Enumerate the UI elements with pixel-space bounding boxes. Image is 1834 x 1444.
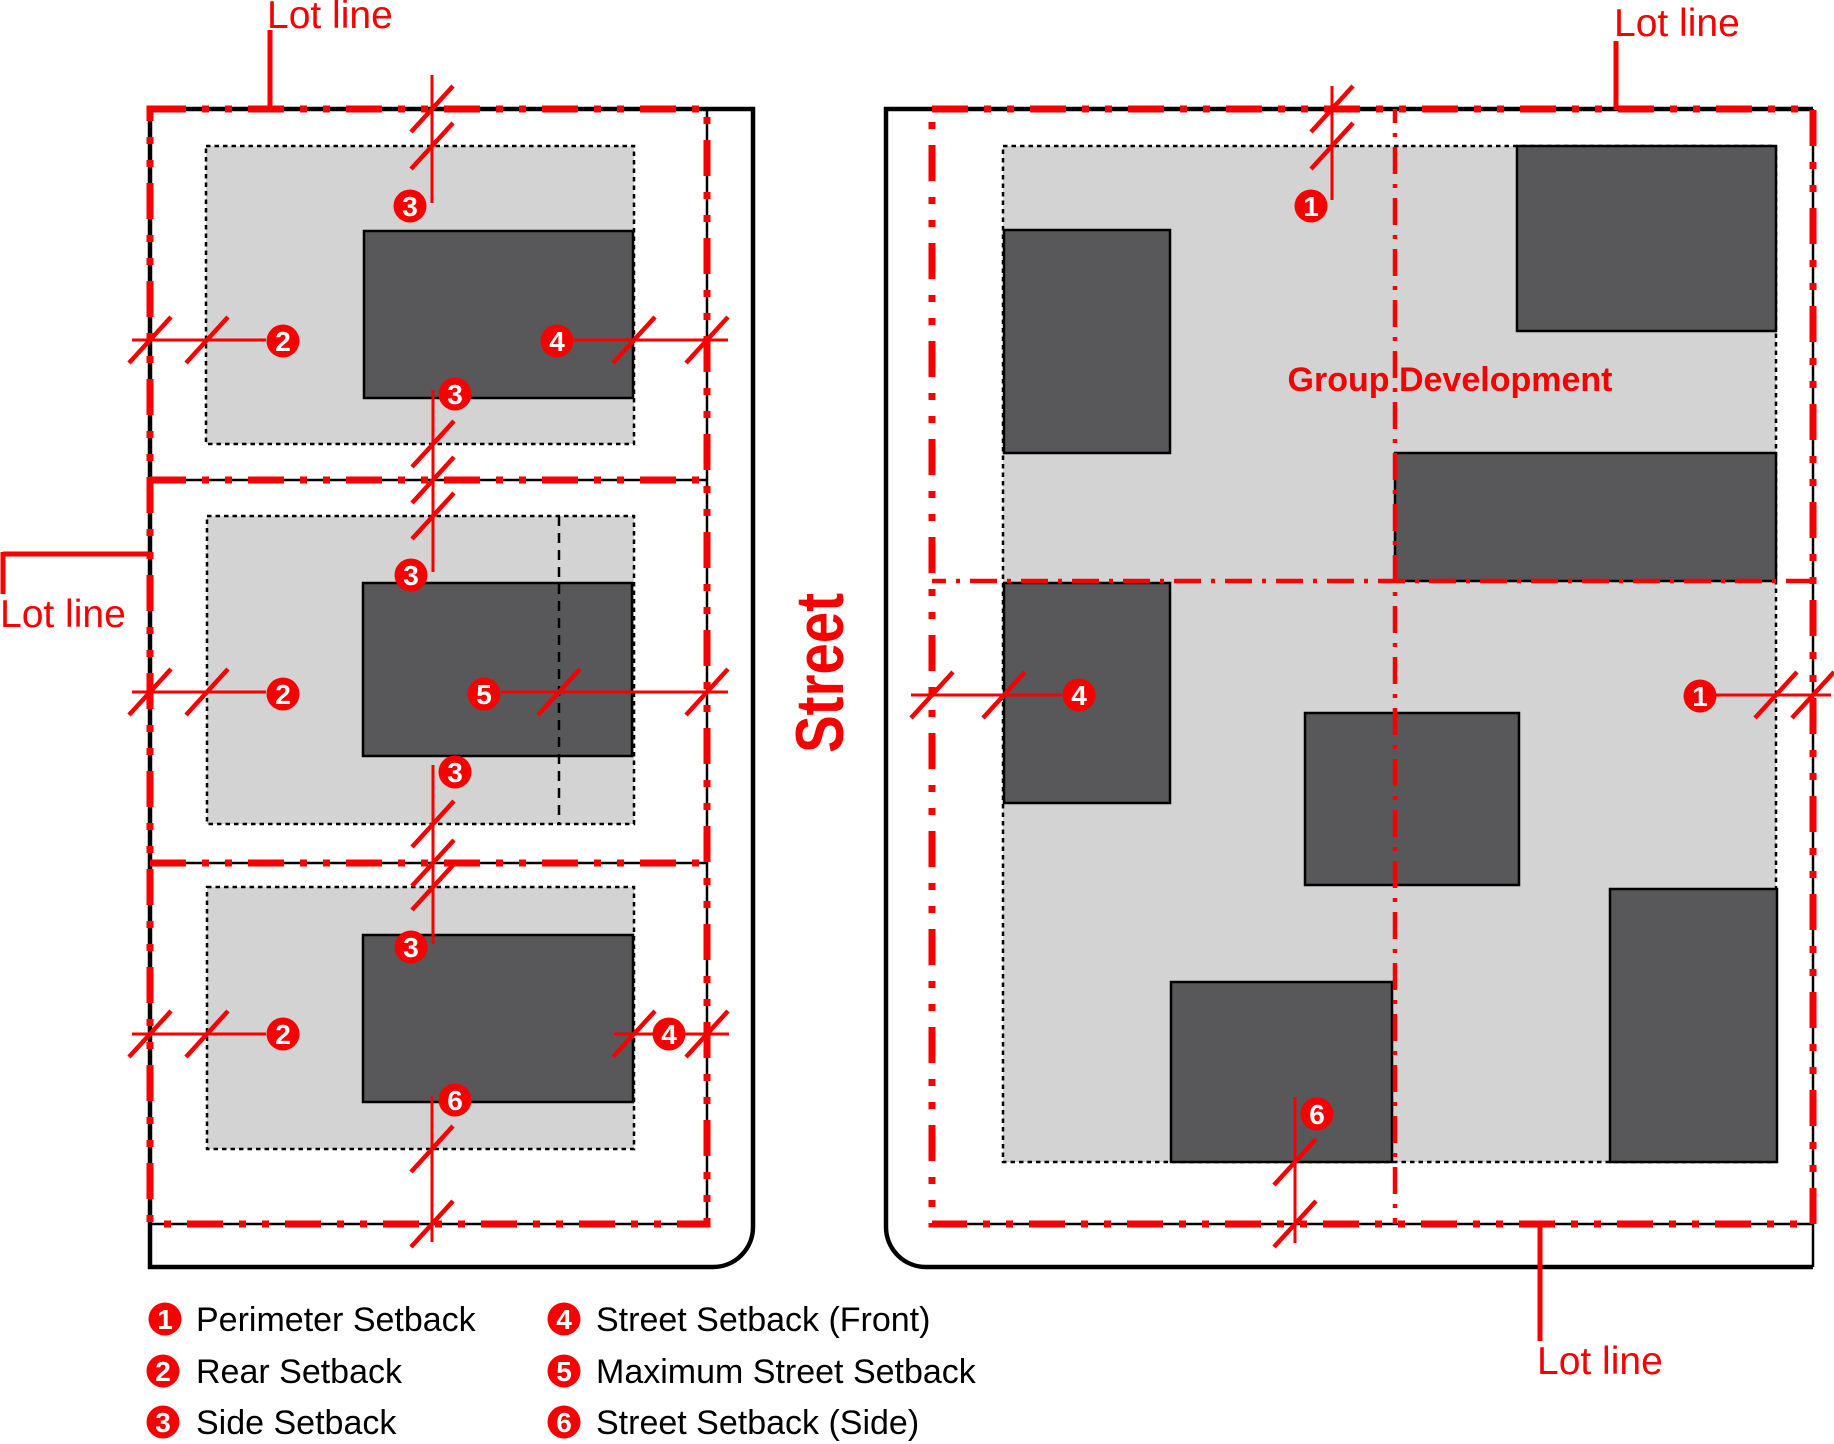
svg-text:4: 4 xyxy=(1071,680,1087,711)
svg-text:4: 4 xyxy=(661,1019,677,1050)
svg-text:Maximum Street Setback: Maximum Street Setback xyxy=(596,1353,977,1391)
svg-text:3: 3 xyxy=(447,379,463,410)
svg-text:Lot line: Lot line xyxy=(267,0,393,37)
svg-text:1: 1 xyxy=(1692,681,1708,712)
svg-text:6: 6 xyxy=(447,1085,463,1116)
svg-text:Street Setback (Side): Street Setback (Side) xyxy=(596,1404,919,1442)
svg-text:2: 2 xyxy=(275,326,291,357)
svg-text:Street: Street xyxy=(782,593,858,753)
svg-text:1: 1 xyxy=(1303,191,1319,222)
svg-text:Perimeter Setback: Perimeter Setback xyxy=(196,1301,477,1339)
svg-text:5: 5 xyxy=(556,1356,572,1387)
svg-text:3: 3 xyxy=(403,560,419,591)
svg-text:2: 2 xyxy=(275,679,291,710)
svg-text:6: 6 xyxy=(1309,1099,1325,1130)
svg-text:2: 2 xyxy=(275,1019,291,1050)
svg-text:4: 4 xyxy=(549,326,565,357)
svg-text:3: 3 xyxy=(155,1407,171,1438)
svg-text:Lot line: Lot line xyxy=(0,593,126,636)
svg-text:3: 3 xyxy=(402,191,418,222)
svg-text:Side Setback: Side Setback xyxy=(196,1404,397,1442)
svg-text:Rear Setback: Rear Setback xyxy=(196,1353,403,1391)
svg-text:Lot line: Lot line xyxy=(1614,2,1740,45)
svg-text:Lot line: Lot line xyxy=(1537,1340,1663,1383)
svg-text:4: 4 xyxy=(556,1304,572,1335)
svg-text:1: 1 xyxy=(157,1304,173,1335)
svg-text:3: 3 xyxy=(403,932,419,963)
svg-text:3: 3 xyxy=(447,757,463,788)
svg-text:6: 6 xyxy=(556,1407,572,1438)
svg-text:5: 5 xyxy=(476,679,492,710)
svg-text:2: 2 xyxy=(155,1356,171,1387)
svg-text:Group Development: Group Development xyxy=(1288,361,1613,399)
svg-text:Street Setback (Front): Street Setback (Front) xyxy=(596,1301,930,1339)
